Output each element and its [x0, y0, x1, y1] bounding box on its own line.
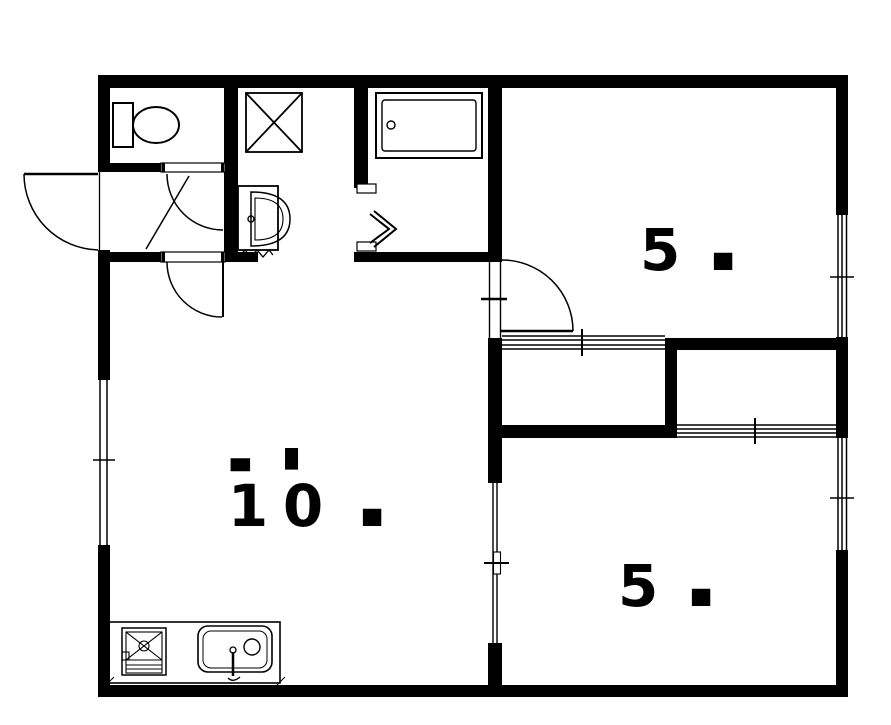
kitchen-counter: [104, 622, 285, 687]
size-digit: 1: [222, 480, 274, 532]
room-label-living-name: [210, 422, 317, 474]
wall-right-lower: [836, 550, 848, 685]
bathroom-folding-door: [357, 184, 396, 251]
entrance-door: [24, 172, 100, 250]
kanji-you: [608, 502, 660, 554]
wall-closet-bottom: [488, 425, 677, 438]
wall-center-vertical-mid: [488, 437, 502, 483]
shower-pan-icon: [246, 93, 302, 152]
kanji-kan: [265, 422, 317, 474]
windows: [93, 215, 854, 550]
washbasin-icon: [238, 186, 290, 257]
wall-right-upper: [836, 88, 848, 215]
window-left: [93, 380, 115, 545]
wall-hall-right: [224, 88, 238, 260]
wall-left-middle: [98, 250, 110, 380]
room-label-bedroom-bottom-size: 5: [618, 560, 713, 612]
bedroom-top-hinged-door: [481, 260, 573, 338]
size-digit: 5: [640, 224, 680, 276]
window-right-top: [830, 215, 854, 337]
kanji-jou: [661, 560, 713, 612]
room-label-living-size: 1 0: [222, 480, 384, 532]
wall-bedroom-top-bottom: [665, 338, 848, 350]
wall-top: [98, 75, 848, 88]
wall-hall-bottom-left: [98, 252, 163, 262]
kitchen-sink-icon: [198, 626, 272, 680]
living-bedroom-sliding-door: [484, 482, 509, 643]
wall-center-vertical-lower: [488, 643, 502, 685]
kanji-shitsu: [683, 166, 735, 218]
size-digit: 5: [618, 560, 658, 612]
kanji-kyo: [210, 422, 262, 474]
window-right-bottom: [830, 438, 854, 550]
closet-top-sliding-door: [502, 329, 665, 356]
toilet-icon: [113, 103, 179, 147]
room-label-bedroom-top-size: 5: [640, 224, 735, 276]
room-label-bedroom-top-name: [628, 166, 735, 218]
fixtures: [104, 93, 482, 687]
size-digit: 0: [277, 480, 329, 532]
wall-washroom-bath-divider: [354, 88, 368, 188]
toilet-door: [146, 163, 225, 249]
closet-bottom-sliding-door: [677, 418, 836, 444]
wall-bath-bottom: [354, 252, 502, 262]
wall-hall-bottom-right: [223, 252, 258, 262]
wall-center-vertical-upper: [488, 88, 502, 260]
room-label-bedroom-bottom-name: [608, 502, 715, 554]
wall-right-middle: [836, 337, 848, 438]
kanji-jou: [683, 224, 735, 276]
kanji-shitsu: [663, 502, 715, 554]
bathtub-icon: [376, 93, 482, 158]
interior-walls: [98, 88, 848, 685]
wall-center-vertical-closet: [488, 338, 502, 437]
hall-living-door: [161, 252, 225, 317]
wall-bottom: [98, 685, 848, 697]
kanji-jou: [332, 480, 384, 532]
wall-left-upper: [98, 88, 110, 172]
floor-plan-drawing: [0, 0, 891, 725]
wall-closet-divider: [665, 338, 677, 438]
gas-stove-icon: [122, 628, 166, 675]
kanji-you: [628, 166, 680, 218]
floor-plan: 5 1 0 5: [0, 0, 891, 725]
wall-toilet-bottom-left: [110, 163, 163, 172]
